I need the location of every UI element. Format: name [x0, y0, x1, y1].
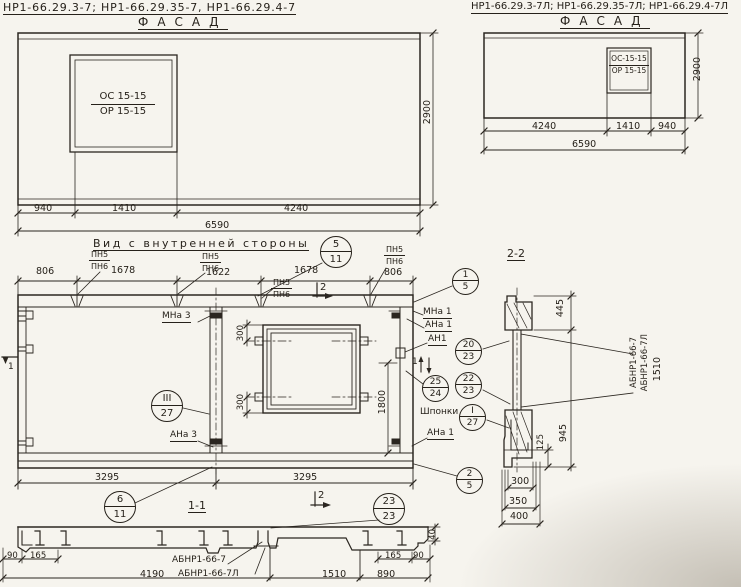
dim-125: 125 — [537, 434, 546, 450]
dim-945: 945 — [559, 424, 569, 442]
dim-1410-right-facade: 1410 — [616, 122, 640, 132]
dim-806-b: 806 — [384, 268, 402, 278]
dim-1410-left-facade: 1410 — [112, 204, 136, 214]
dim-400-sec: 400 — [510, 512, 528, 522]
label-ana1-bottom: АНа 1 — [427, 429, 454, 440]
dim-1622: 1622 — [206, 268, 230, 278]
dim-806-a: 806 — [36, 267, 54, 277]
pn-callout-4: ПН5 ПН6 — [384, 245, 405, 266]
callout-balloon-25-24: 25 24 — [422, 375, 449, 402]
dim-165-right: 165 — [385, 552, 401, 561]
drawing-sheet: НР1-66.29.3-7; НР1-66.29.35-7, НР1-66.29… — [0, 0, 741, 587]
part-label-abnrl-2-2: АБНР1-66-7Л — [641, 334, 650, 391]
callout-balloon-1-5: 1 5 — [452, 268, 479, 295]
label-shponki: Шпонки — [420, 408, 458, 417]
dim-6590-left-facade: 6590 — [205, 221, 229, 231]
facade-left-outline — [15, 30, 438, 236]
label-ana1: АНа 1 — [425, 321, 452, 332]
facade-right-window-mark: ОС-15-15 ОР 15-15 — [609, 55, 649, 75]
label-mna1: МНа 1 — [423, 308, 452, 319]
cut-mark-1-right: 1 — [412, 358, 418, 367]
callout-balloon-5-11: 5 11 — [320, 236, 352, 268]
callout-balloon-6-11: 6 11 — [104, 491, 136, 523]
dim-445: 445 — [556, 299, 566, 317]
section-2-2-outline — [499, 288, 633, 527]
section-2-2-title: 2-2 — [507, 248, 525, 261]
dim-300-top: 300 — [237, 325, 246, 341]
callout-balloon-III-27: III 27 — [151, 390, 183, 422]
dim-90-right: 90 — [413, 552, 424, 561]
label-an1: АН1 — [428, 335, 447, 346]
label-ana3: АНа 3 — [170, 431, 197, 442]
callout-balloon-23-23: 23 23 — [373, 493, 405, 525]
dim-3295-right: 3295 — [293, 473, 317, 483]
facade-right-title: НР1-66.29.3-7Л; НР1-66.29.35-7Л; НР1-66.… — [471, 2, 728, 14]
dim-6590-right-facade: 6590 — [572, 140, 596, 150]
pn-callout-1: ПН5 ПН6 — [89, 250, 110, 271]
dim-1510-part: 1510 — [653, 357, 663, 381]
dim-3295-left: 3295 — [95, 473, 119, 483]
dim-1678-a: 1678 — [111, 266, 135, 276]
dim-90-left: 90 — [7, 552, 18, 561]
callout-balloon-20-23: 20 23 — [455, 338, 482, 365]
inner-view-title: Вид с внутренней стороны — [93, 238, 309, 251]
dim-4240-right-facade: 4240 — [532, 122, 556, 132]
dim-890: 890 — [377, 570, 395, 580]
dim-1800: 1800 — [378, 390, 388, 414]
facade-left-title: НР1-66.29.3-7; НР1-66.29.35-7, НР1-66.29… — [3, 2, 296, 15]
part-label-abnr-2-2: АБНР1-66-7 — [630, 337, 639, 388]
callout-balloon-22-23: 22 23 — [455, 372, 482, 399]
dim-165-left: 165 — [30, 552, 46, 561]
dim-40: 40 — [429, 529, 438, 540]
facade-left-window-mark: ОС 15-15 ОР 15-15 — [91, 91, 155, 117]
label-mna3: МНа 3 — [162, 312, 191, 323]
dim-4240-left-facade: 4240 — [284, 204, 308, 214]
dim-1510-sec: 1510 — [322, 570, 346, 580]
facade-right-outline — [481, 30, 703, 154]
cut-mark-1-left: 1 — [8, 363, 14, 372]
dim-2900-left-facade: 2900 — [423, 100, 433, 124]
dim-2900-right-facade: 2900 — [693, 57, 703, 81]
dim-1678-b: 1678 — [294, 266, 318, 276]
cut-mark-2-top: 2 — [320, 283, 326, 293]
facade-right-view-label: ФАСАД — [560, 15, 650, 29]
cut-mark-2-bottom: 2 — [318, 491, 324, 501]
pn-callout-3: ПН5 ПН6 — [271, 278, 292, 299]
dim-940-right-facade: 940 — [658, 122, 676, 132]
facade-left-view-label: ФАСАД — [138, 16, 228, 30]
callout-balloon-2-5: 2 5 — [456, 467, 483, 494]
dim-300-bottom: 300 — [237, 394, 246, 410]
part-label-abnr-1-1: АБНР1-66-7 — [172, 556, 226, 565]
part-label-abnrl-1-1: АБНР1-66-7Л — [178, 570, 239, 579]
dim-350-sec: 350 — [509, 497, 527, 507]
dim-4190: 4190 — [140, 570, 164, 580]
callout-balloon-I-27: I 27 — [459, 404, 486, 431]
dim-940-left-facade: 940 — [34, 204, 52, 214]
dim-300-sec: 300 — [511, 477, 529, 487]
section-1-1-title: 1-1 — [188, 500, 206, 513]
